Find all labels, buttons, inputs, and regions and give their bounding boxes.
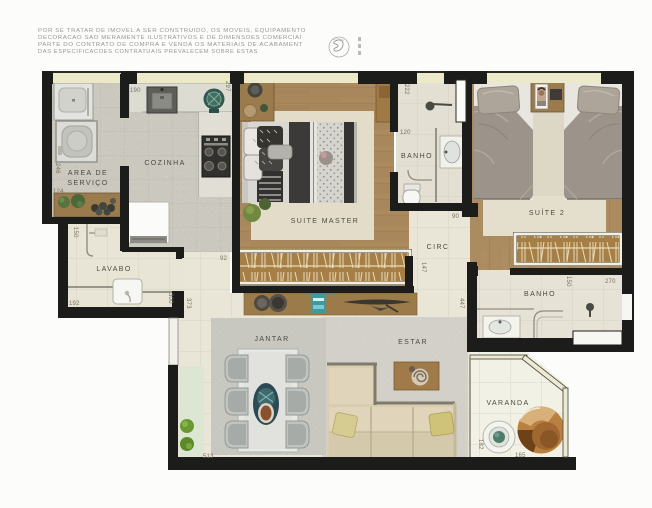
svg-text:182: 182 (477, 439, 483, 450)
svg-text:BANHO: BANHO (401, 153, 433, 160)
svg-text:VARANDA: VARANDA (486, 400, 529, 407)
svg-text:AREA DE: AREA DE (68, 170, 108, 177)
svg-text:270: 270 (605, 279, 616, 285)
svg-text:90: 90 (452, 214, 460, 220)
svg-text:DAS ESPECIFICACOES CONTRATUAIS: DAS ESPECIFICACOES CONTRATUAIS PREVALECE… (38, 49, 258, 55)
svg-text:ESTAR: ESTAR (398, 339, 428, 346)
svg-text:JANTAR: JANTAR (254, 336, 289, 343)
svg-text:447: 447 (458, 298, 464, 309)
svg-text:190: 190 (130, 88, 141, 94)
svg-text:SERVIÇO: SERVIÇO (67, 180, 108, 187)
svg-text:BANHO: BANHO (524, 291, 556, 298)
svg-text:513: 513 (203, 454, 214, 460)
svg-text:150: 150 (72, 227, 78, 238)
svg-text:300: 300 (167, 293, 173, 304)
svg-text:SUITE MASTER: SUITE MASTER (291, 218, 360, 225)
svg-text:373: 373 (185, 298, 191, 309)
svg-text:124: 124 (53, 189, 64, 195)
svg-text:192: 192 (69, 301, 80, 307)
svg-text:DECORACAO SAO MERAMENTE ILUSTR: DECORACAO SAO MERAMENTE ILUSTRATIVOS E D… (38, 35, 302, 41)
svg-text:147: 147 (420, 262, 426, 273)
svg-text:SUÍTE 2: SUÍTE 2 (529, 208, 565, 217)
svg-text:COZINHA: COZINHA (144, 160, 185, 167)
svg-text:222: 222 (403, 84, 409, 95)
svg-text:PARTE DO CONTRATO DE COMPRA E: PARTE DO CONTRATO DE COMPRA E VENDA OS M… (38, 42, 303, 48)
svg-text:CIRC: CIRC (427, 244, 450, 251)
svg-text:120: 120 (400, 130, 411, 136)
svg-text:LAVABO: LAVABO (96, 266, 131, 273)
svg-text:150: 150 (565, 276, 571, 287)
svg-text:246: 246 (54, 163, 60, 174)
svg-text:92: 92 (220, 256, 228, 262)
svg-text:297: 297 (224, 81, 230, 92)
svg-text:POR SE TRATAR DE IMOVEL A SER: POR SE TRATAR DE IMOVEL A SER CONSTRUIDO… (38, 28, 306, 34)
svg-text:165: 165 (515, 453, 526, 459)
